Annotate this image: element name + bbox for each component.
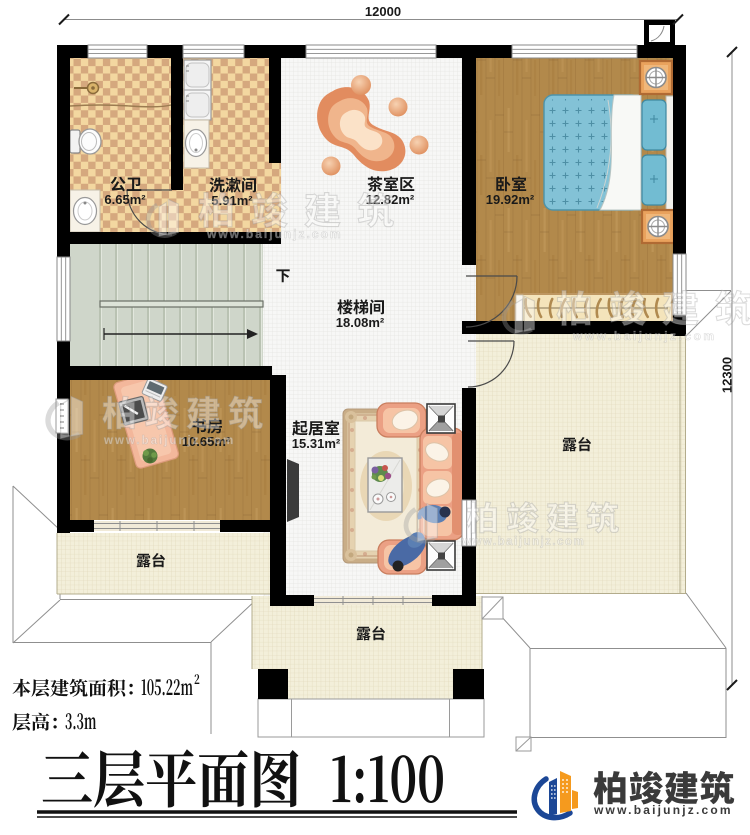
svg-text:www.baijunjz.com: www.baijunjz.com: [103, 435, 235, 447]
svg-text:www.baijunjz.com: www.baijunjz.com: [461, 536, 585, 548]
svg-text:www.baijunjz.com: www.baijunjz.com: [593, 803, 733, 817]
svg-text:12300: 12300: [720, 357, 735, 393]
svg-text:12000: 12000: [365, 4, 401, 19]
svg-text:15.31m²: 15.31m²: [292, 436, 341, 451]
svg-text:www.baijunjz.com: www.baijunjz.com: [206, 227, 343, 241]
svg-text:6.65m²: 6.65m²: [104, 192, 146, 207]
svg-text:19.92m²: 19.92m²: [486, 192, 535, 207]
svg-text:www.baijunjz.com: www.baijunjz.com: [572, 329, 717, 343]
svg-text:18.08m²: 18.08m²: [336, 315, 385, 330]
